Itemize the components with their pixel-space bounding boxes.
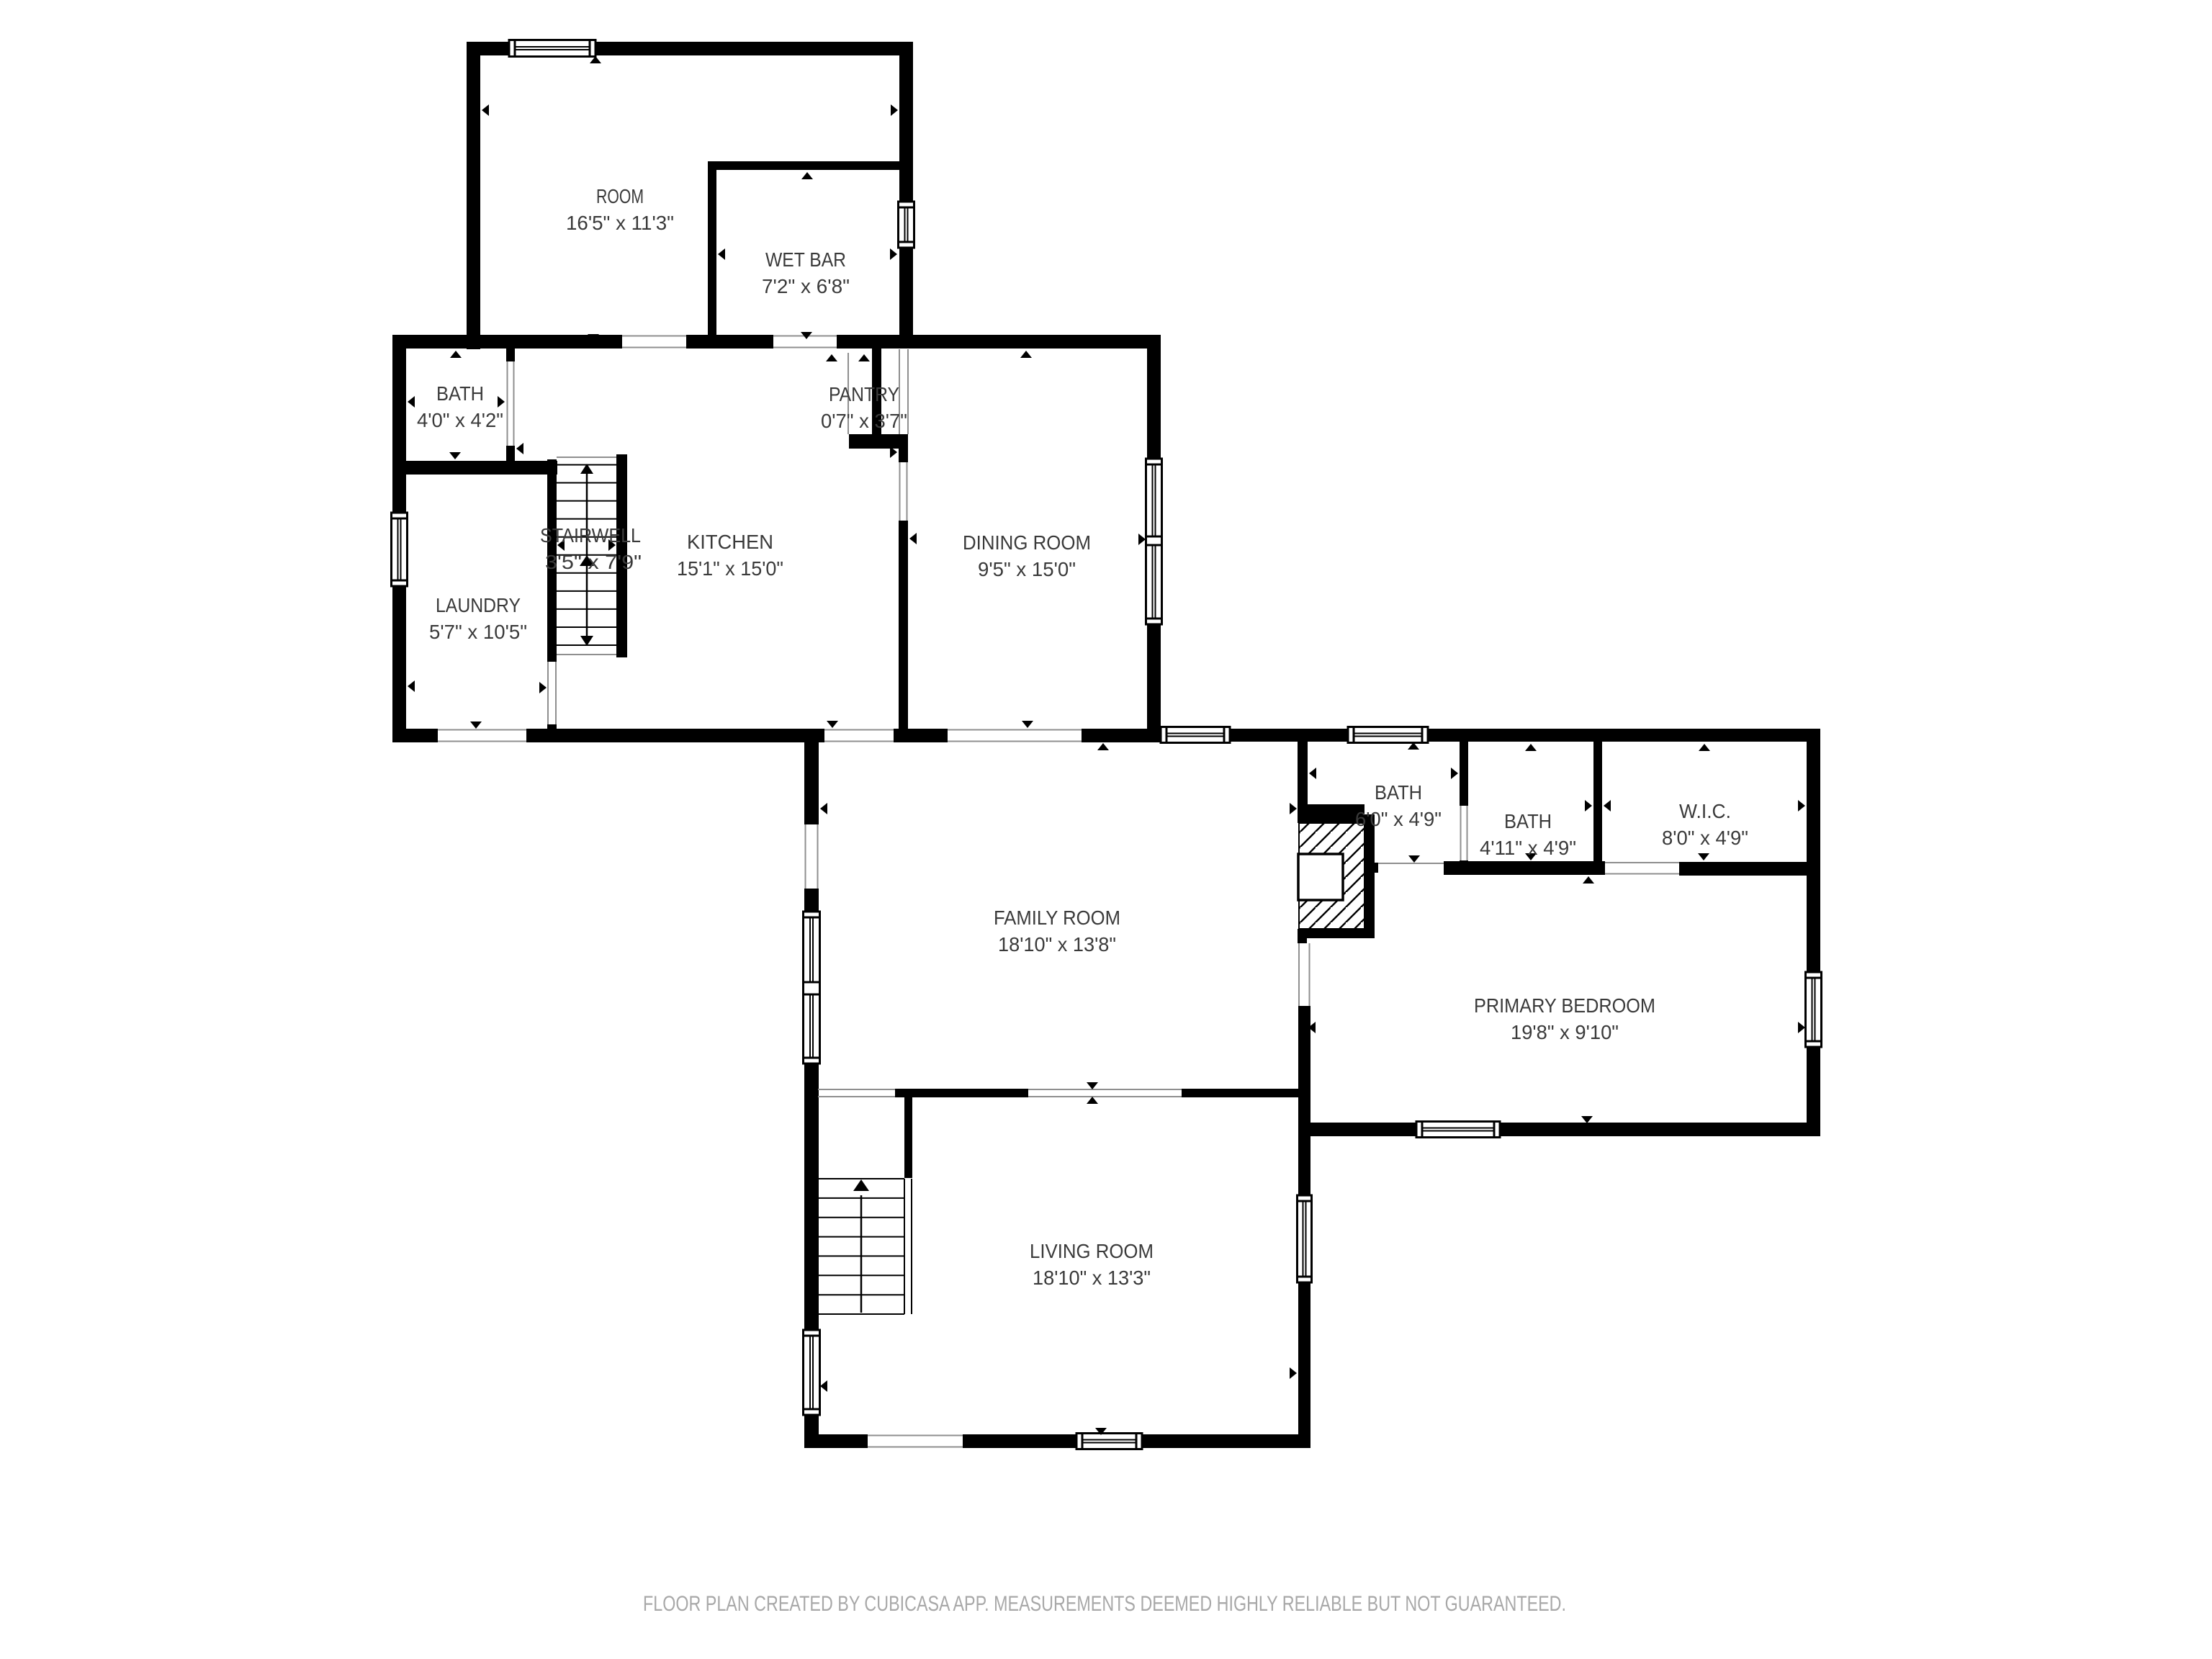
svg-text:16'5" x 11'3": 16'5" x 11'3": [566, 212, 674, 234]
svg-text:6'0" x 4'9": 6'0" x 4'9": [1355, 808, 1442, 830]
svg-text:0'7" x 3'7": 0'7" x 3'7": [821, 410, 907, 432]
svg-text:PRIMARY BEDROOM: PRIMARY BEDROOM: [1474, 994, 1655, 1017]
svg-text:LIVING ROOM: LIVING ROOM: [1030, 1240, 1154, 1262]
svg-text:DINING ROOM: DINING ROOM: [963, 531, 1091, 554]
svg-text:9'5" x 15'0": 9'5" x 15'0": [978, 558, 1076, 580]
svg-text:4'0" x 4'2": 4'0" x 4'2": [417, 409, 503, 431]
svg-text:BATH: BATH: [436, 382, 484, 405]
svg-text:5'7" x 10'5": 5'7" x 10'5": [429, 621, 527, 643]
svg-text:18'10" x 13'8": 18'10" x 13'8": [998, 933, 1116, 956]
svg-text:KITCHEN: KITCHEN: [687, 531, 773, 553]
svg-text:FLOOR PLAN CREATED BY CUBICASA: FLOOR PLAN CREATED BY CUBICASA APP. MEAS…: [643, 1592, 1566, 1616]
svg-text:FAMILY ROOM: FAMILY ROOM: [994, 907, 1120, 929]
svg-text:LAUNDRY: LAUNDRY: [436, 594, 521, 616]
svg-text:3'5" x 7'9": 3'5" x 7'9": [545, 551, 642, 573]
svg-text:PANTRY: PANTRY: [829, 383, 899, 405]
svg-text:W.I.C.: W.I.C.: [1679, 800, 1731, 822]
svg-text:18'10" x 13'3": 18'10" x 13'3": [1033, 1267, 1151, 1289]
svg-text:19'8" x 9'10": 19'8" x 9'10": [1511, 1021, 1619, 1043]
svg-text:STAIRWELL: STAIRWELL: [540, 524, 641, 547]
svg-text:8'0" x 4'9": 8'0" x 4'9": [1662, 827, 1748, 849]
svg-text:7'2" x 6'8": 7'2" x 6'8": [762, 275, 850, 297]
svg-text:WET BAR: WET BAR: [765, 248, 846, 271]
svg-text:ROOM: ROOM: [596, 185, 644, 207]
svg-text:BATH: BATH: [1375, 781, 1422, 804]
svg-text:4'11" x 4'9": 4'11" x 4'9": [1480, 837, 1576, 859]
svg-text:15'1" x 15'0": 15'1" x 15'0": [677, 557, 783, 580]
svg-text:BATH: BATH: [1504, 810, 1552, 832]
